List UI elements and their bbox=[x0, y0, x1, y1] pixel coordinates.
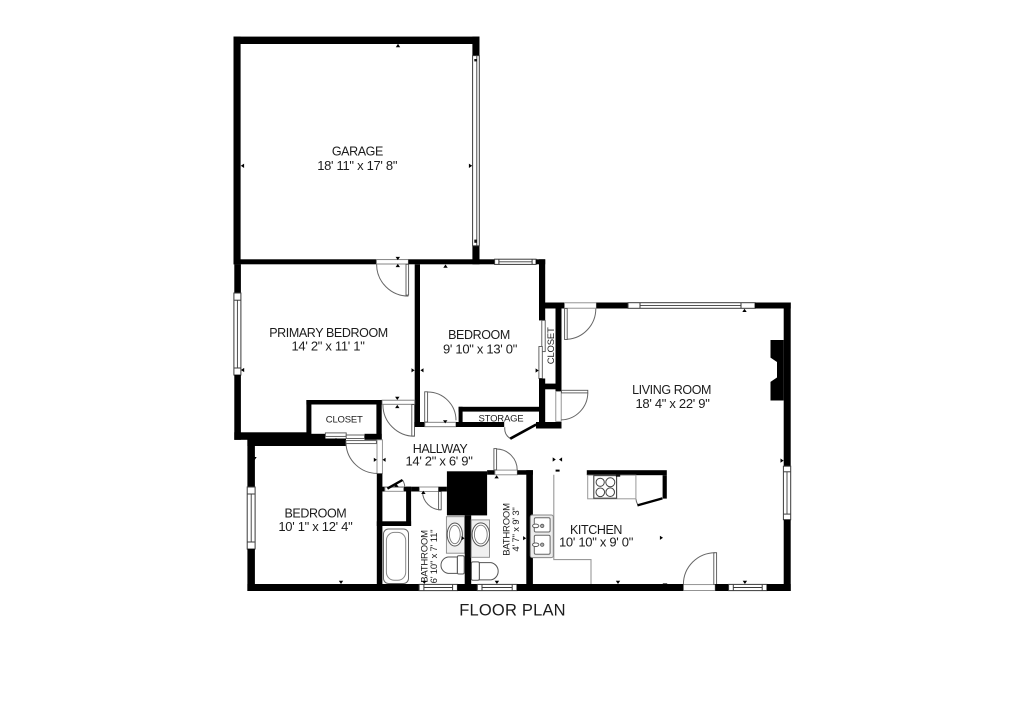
svg-text:10' 10" x 9' 0": 10' 10" x 9' 0" bbox=[559, 535, 634, 550]
svg-text:4' 7" x 9' 3": 4' 7" x 9' 3" bbox=[511, 507, 522, 551]
svg-text:14' 2" x 11' 1": 14' 2" x 11' 1" bbox=[291, 339, 365, 354]
svg-text:BEDROOM: BEDROOM bbox=[448, 328, 510, 342]
svg-text:FLOOR PLAN: FLOOR PLAN bbox=[459, 602, 566, 620]
svg-text:9' 10" x 13' 0": 9' 10" x 13' 0" bbox=[443, 342, 518, 357]
svg-text:GARAGE: GARAGE bbox=[332, 145, 383, 159]
svg-text:LIVING ROOM: LIVING ROOM bbox=[632, 383, 711, 397]
svg-text:18' 11" x 17' 8": 18' 11" x 17' 8" bbox=[317, 158, 398, 173]
svg-text:10' 1" x 12' 4": 10' 1" x 12' 4" bbox=[278, 519, 353, 534]
svg-text:18' 4" x 22' 9": 18' 4" x 22' 9" bbox=[635, 396, 710, 411]
svg-text:14' 2" x 6' 9": 14' 2" x 6' 9" bbox=[405, 454, 473, 469]
svg-text:CLOSET: CLOSET bbox=[326, 414, 363, 425]
svg-text:6' 10" x 7' 11": 6' 10" x 7' 11" bbox=[429, 530, 440, 584]
